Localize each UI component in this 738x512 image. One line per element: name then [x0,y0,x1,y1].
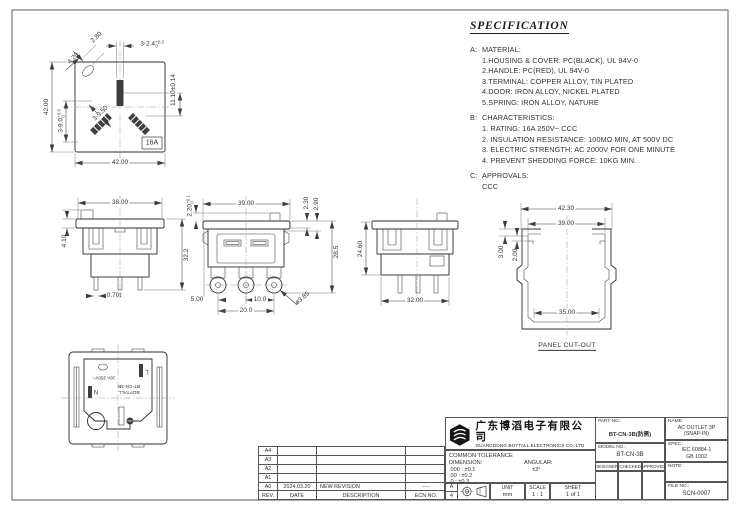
dim-front-step-b: 2.90 [314,198,321,211]
dim-cutout-inner-width: 39.00 [556,221,575,228]
dim-sidea-pin-thickness: 0.70t [107,293,121,300]
file-no-value: SCN-0007 [666,488,727,499]
dim-face-size-left: 42.00 [44,99,51,115]
rear-live-marking: L [145,368,148,374]
rev-header: REV. [259,491,278,500]
spec-box: SPEC.: IEC 60884-1GB 1002 [665,440,728,462]
specification-block: SPECIFICATION A:MATERIAL: 1.HOUSING & CO… [470,16,724,192]
rev-cell: A1 [259,474,278,483]
dim-sidea-width: 38.00 [110,200,129,207]
dim-front-step-a: 2.30 [304,197,311,210]
projection-symbol-cell [457,483,490,500]
rev-cell: A3 [259,456,278,465]
designer-header: DESIGNER [595,462,618,471]
dim-cutout-hook-depth: 3.00 [499,246,506,259]
rear-rating-marking: 16A 250V~ [93,375,116,380]
model-no-value: BT-CN-3B [596,449,664,461]
dim-front-tab-height: 2.20+0.10 [187,195,196,216]
dim-face-slot-length: 3-9.0+0.50 [58,109,67,133]
rear-neutral-marking: N [94,388,98,394]
company-logo [448,423,472,447]
side-b-view-linework [361,198,458,306]
rating-box-label: 16A [146,140,158,147]
spec-section-b: B:CHARACTERISTICS: [470,113,724,124]
revision-table: A4 A3 A2 A1 A02024.03.20NEW REVISION----… [258,446,445,500]
unit-cell: UNITmm [490,483,525,500]
dim-cutout-hook-step: 2.00 [513,249,520,262]
file-no-box: FILE NO.: SCN-0007 [665,482,728,500]
dim-front-pin-edge-offset: 5.00 [189,297,205,304]
spec-item: 1. RATING: 16A 250V~ CCC [470,124,724,135]
company-box: 广东博滔电子有限公司 GUANGDONG BOYTALL ELECTRONICS… [445,417,596,450]
dim-sidea-total-h: 32.2 [184,249,191,262]
model-no-box: MODEL NO.: BT-CN-3B [595,443,665,462]
dim-front-height: 28.5 [334,246,341,259]
part-no-box: PART NO.: BT-CN-3B(防黑) [595,417,665,443]
spec-item: 3.TERMINAL: COPPER ALLOY, TIN PLATED [470,77,724,88]
designer-signature-cell [595,471,618,500]
dim-front-pin-pitch: 10.0 [252,297,268,304]
approved-signature-cell [642,471,665,500]
dim-sidea-flange-h: 4.10 [62,235,69,248]
spec-section-a: A:MATERIAL: [470,45,724,56]
spec-title: SPECIFICATION [470,20,569,34]
dim-cutout-bottom-width: 35.00 [557,310,576,317]
spec-item: 3. ELECTRIC STRENGTH: AC 2000V FOR ONE M… [470,145,724,156]
panel-cutout-caption: PANEL CUT-OUT [538,343,596,351]
dim-face-pin-offset: 11.10±0.14 [171,72,178,107]
side-a-view-linework [62,196,186,298]
rev-cell: A0 [259,483,278,492]
dim-sideb-height: 24.60 [358,241,365,257]
spec-item: 4.DOOR: IRON ALLOY, NICKEL PLATED [470,87,724,98]
dim-sideb-width: 32.00 [405,298,424,305]
approved-header: APPROVED [642,462,665,471]
projection-symbol-icon [459,484,489,499]
spec-item: 4. PREVENT SHEDDING FORCE: 10KG MIN. [470,156,724,167]
rear-brand-marking: BOYTALLBT-CN-3B [118,382,140,394]
rev-cell: A2 [259,465,278,474]
name-box: NAME: AC OUTLET 3P(SNAP-IN) [665,417,728,440]
dim-face-size-bottom: 42.00 [110,160,129,167]
spec-item: CCC [470,182,724,193]
rev-cell: A4 [259,447,278,456]
dim-front-pin-span: 20.0 [238,308,254,315]
spec-item: 2.HANDLE: PC(RED), UL 94V-0 [470,66,724,77]
dim-face-slot-width: 3-2.4+0.30 [140,41,164,50]
checked-header: CHECKED [618,462,641,471]
spec-item: 5.SPRING: IRON ALLOY, NATURE [470,98,724,109]
spec-section-c: C:APPROVALS: [470,171,724,182]
scale-cell: SCALE1 : 1 [525,483,550,500]
part-no-value: BT-CN-3B(防黑) [596,425,664,442]
company-name-en: GUANGDONG BOYTALL ELECTRONICS CO.,LTD [476,443,594,449]
tolerance-box: COMMON TOLERANCE DIMENSION: ANGULAR: .00… [445,450,596,483]
dim-front-width: 39.00 [236,201,255,208]
checked-signature-cell [618,471,641,500]
spec-item: 2. INSULATION RESISTANCE: 100MΩ MIN, AT … [470,135,724,146]
dim-cutout-outer-width: 42.30 [556,206,575,213]
note-box: NOTE: [665,462,728,482]
company-name-cn: 广东博滔电子有限公司 [476,421,594,443]
drawing-sheet: 42.00 3-9.0+0.50 42.00 3-2.4+0.30 11.10±… [0,0,738,512]
spec-item: 1.HOUSING & COVER: PC(BLACK), UL 94V-0 [470,56,724,67]
sheet-cell: SHEET1 of 1 [550,483,596,500]
rear-view-linework [61,344,175,451]
